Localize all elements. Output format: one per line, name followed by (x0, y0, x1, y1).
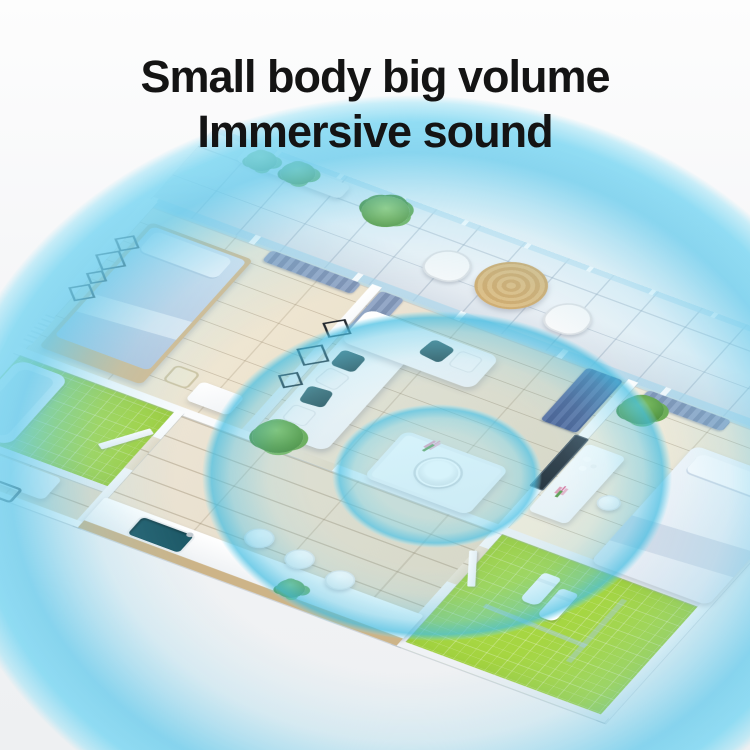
headline-line-2: Immersive sound (197, 106, 552, 157)
marketing-banner: Small body big volumeImmersive sound (0, 0, 750, 750)
headline-line-1: Small body big volume (140, 51, 609, 102)
apartment-floorplan (0, 127, 750, 723)
headline: Small body big volumeImmersive sound (0, 50, 750, 160)
